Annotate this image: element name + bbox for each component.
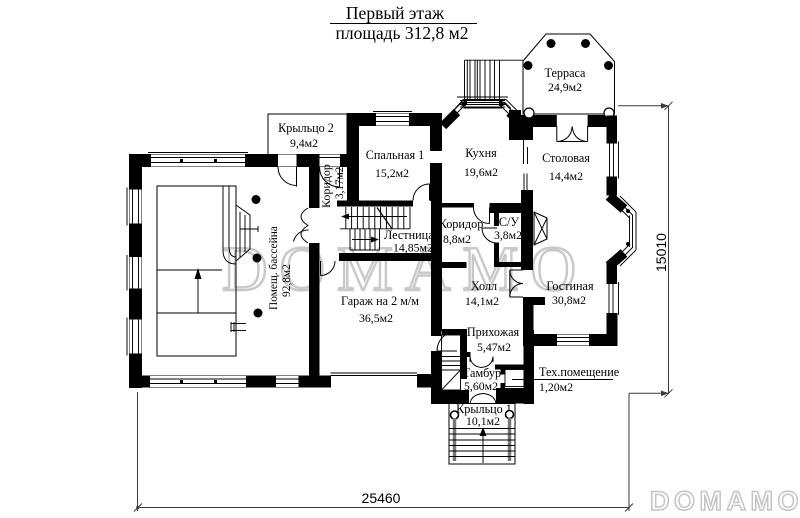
svg-text:36,5м2: 36,5м2	[359, 311, 393, 325]
svg-text:19,6м2: 19,6м2	[464, 165, 498, 179]
svg-text:25460: 25460	[362, 490, 401, 506]
svg-text:Гараж на 2 м/м: Гараж на 2 м/м	[341, 294, 419, 308]
svg-text:Коридор: Коридор	[319, 164, 333, 208]
svg-text:Тамбур: Тамбур	[463, 366, 501, 380]
svg-text:3,17м2: 3,17м2	[334, 167, 346, 199]
svg-text:Кухня: Кухня	[465, 146, 497, 160]
svg-text:8,8м2: 8,8м2	[443, 232, 471, 246]
svg-text:Прихожая: Прихожая	[467, 325, 520, 339]
svg-text:14,85м2: 14,85м2	[393, 241, 433, 255]
svg-text:14,1м2: 14,1м2	[465, 294, 499, 308]
svg-text:10,1м2: 10,1м2	[466, 414, 500, 428]
svg-text:24,9м2: 24,9м2	[548, 80, 582, 94]
svg-text:Коридор: Коридор	[439, 217, 484, 231]
svg-text:площадь 312,8 м2: площадь 312,8 м2	[336, 23, 469, 43]
svg-text:5,47м2: 5,47м2	[477, 340, 511, 354]
svg-text:Спальная 1: Спальная 1	[366, 148, 425, 162]
svg-text:DOMAMO: DOMAMO	[650, 486, 800, 516]
svg-text:92,8м2: 92,8м2	[281, 264, 293, 297]
svg-text:1,20м2: 1,20м2	[539, 380, 573, 394]
svg-text:15010: 15010	[653, 233, 669, 272]
svg-text:Холл: Холл	[471, 279, 497, 293]
svg-text:Первый этаж: Первый этаж	[346, 3, 445, 23]
svg-text:3,8м2: 3,8м2	[494, 228, 522, 242]
svg-text:Терраса: Терраса	[545, 66, 587, 80]
svg-text:С/У: С/У	[499, 215, 520, 229]
svg-text:30,8м2: 30,8м2	[552, 293, 586, 307]
svg-text:15,2м2: 15,2м2	[375, 166, 409, 180]
svg-text:5,60м2: 5,60м2	[464, 379, 498, 393]
svg-text:Крыльцо 2: Крыльцо 2	[278, 121, 334, 135]
svg-text:Тех.помещение: Тех.помещение	[539, 365, 619, 379]
svg-text:14,4м2: 14,4м2	[549, 169, 583, 183]
svg-text:9,4м2: 9,4м2	[290, 136, 318, 150]
svg-text:Гостиная: Гостиная	[546, 279, 594, 293]
svg-text:Столовая: Столовая	[542, 151, 590, 165]
svg-text:Помещ. бассейна: Помещ. бассейна	[268, 226, 280, 310]
